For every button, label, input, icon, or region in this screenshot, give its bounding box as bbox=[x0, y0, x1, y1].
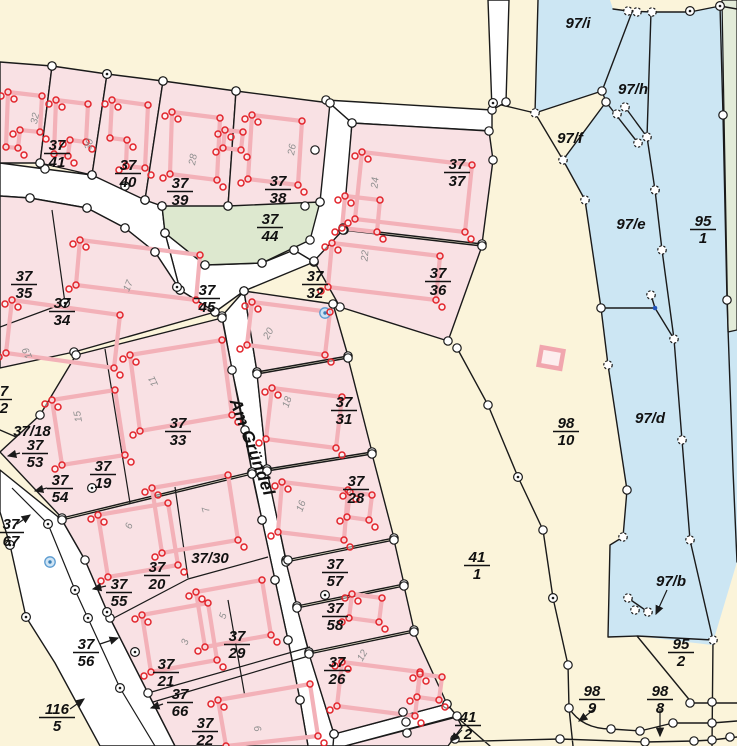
svg-text:33: 33 bbox=[170, 432, 187, 449]
svg-text:37: 37 bbox=[172, 175, 189, 192]
svg-text:37: 37 bbox=[120, 157, 137, 174]
svg-text:2: 2 bbox=[0, 400, 9, 417]
svg-text:37: 37 bbox=[158, 656, 175, 673]
svg-text:37: 37 bbox=[270, 173, 287, 190]
svg-text:98: 98 bbox=[558, 415, 575, 432]
svg-text:8: 8 bbox=[656, 700, 665, 717]
svg-text:20: 20 bbox=[148, 576, 166, 593]
svg-text:26: 26 bbox=[328, 671, 346, 688]
svg-text:1: 1 bbox=[699, 230, 707, 247]
svg-text:95: 95 bbox=[695, 213, 712, 230]
svg-text:56: 56 bbox=[78, 653, 95, 670]
svg-text:7: 7 bbox=[0, 383, 9, 400]
svg-text:41: 41 bbox=[468, 549, 486, 566]
map-canvas[interactable]: 3741374037393738373737443736374537323735… bbox=[0, 0, 737, 746]
svg-text:9: 9 bbox=[588, 700, 597, 717]
svg-text:37: 37 bbox=[348, 473, 365, 490]
svg-text:98: 98 bbox=[584, 683, 601, 700]
svg-text:37: 37 bbox=[199, 282, 216, 299]
svg-text:22: 22 bbox=[196, 732, 214, 746]
svg-text:37: 37 bbox=[229, 628, 246, 645]
svg-text:37: 37 bbox=[336, 394, 353, 411]
svg-text:1: 1 bbox=[473, 566, 481, 583]
parcel-label-97-b: 97/b bbox=[656, 573, 686, 590]
parcel-label-97-i: 97/i bbox=[565, 15, 591, 32]
svg-text:57: 57 bbox=[327, 573, 344, 590]
svg-text:53: 53 bbox=[27, 454, 44, 471]
house-number-22: 22 bbox=[359, 249, 371, 262]
svg-text:97/i: 97/i bbox=[565, 15, 591, 32]
svg-text:37: 37 bbox=[327, 600, 344, 617]
svg-text:37: 37 bbox=[27, 437, 44, 454]
svg-text:19: 19 bbox=[95, 475, 112, 492]
svg-text:37: 37 bbox=[111, 576, 128, 593]
blue-point bbox=[653, 306, 658, 311]
svg-text:37/30: 37/30 bbox=[191, 550, 229, 567]
svg-text:34: 34 bbox=[54, 312, 71, 329]
svg-text:37: 37 bbox=[78, 636, 95, 653]
parcel-label-97-h: 97/h bbox=[618, 81, 648, 98]
svg-text:35: 35 bbox=[16, 285, 33, 302]
svg-text:37: 37 bbox=[449, 156, 466, 173]
svg-text:66: 66 bbox=[172, 703, 189, 720]
svg-text:37: 37 bbox=[16, 268, 33, 285]
svg-text:37: 37 bbox=[3, 516, 20, 533]
svg-text:32: 32 bbox=[307, 285, 324, 302]
svg-text:98: 98 bbox=[652, 683, 669, 700]
house-number-26: 26 bbox=[286, 143, 299, 157]
svg-text:37: 37 bbox=[430, 265, 447, 282]
svg-text:37: 37 bbox=[95, 458, 112, 475]
svg-text:37: 37 bbox=[52, 472, 69, 489]
svg-text:2: 2 bbox=[676, 653, 686, 670]
svg-text:38: 38 bbox=[270, 190, 287, 207]
svg-text:37: 37 bbox=[149, 559, 166, 576]
svg-text:37: 37 bbox=[197, 715, 214, 732]
svg-text:29: 29 bbox=[228, 645, 246, 662]
map-viewport[interactable]: 3741374037393738373737443736374537323735… bbox=[0, 0, 737, 746]
svg-text:37: 37 bbox=[329, 654, 346, 671]
svg-text:55: 55 bbox=[111, 593, 128, 610]
svg-text:37: 37 bbox=[449, 173, 466, 190]
svg-text:97/h: 97/h bbox=[618, 81, 648, 98]
svg-text:97/b: 97/b bbox=[656, 573, 686, 590]
svg-text:45: 45 bbox=[198, 299, 216, 316]
svg-text:28: 28 bbox=[347, 490, 365, 507]
svg-text:41: 41 bbox=[459, 709, 477, 726]
parcel-label-97-f: 97/f bbox=[557, 130, 585, 147]
svg-text:31: 31 bbox=[336, 411, 353, 428]
svg-text:37: 37 bbox=[262, 211, 279, 228]
svg-text:40: 40 bbox=[119, 174, 137, 191]
svg-text:116: 116 bbox=[45, 701, 70, 718]
svg-text:37: 37 bbox=[49, 137, 66, 154]
svg-text:97/d: 97/d bbox=[635, 410, 666, 427]
svg-text:37: 37 bbox=[170, 415, 187, 432]
svg-text:39: 39 bbox=[172, 192, 189, 209]
svg-text:37: 37 bbox=[172, 686, 189, 703]
svg-text:5: 5 bbox=[53, 718, 62, 735]
svg-text:10: 10 bbox=[558, 432, 575, 449]
svg-text:58: 58 bbox=[327, 617, 344, 634]
building-symbol bbox=[539, 347, 564, 369]
svg-text:37: 37 bbox=[307, 268, 324, 285]
parcel-label-97-e: 97/e bbox=[616, 216, 645, 233]
svg-text:54: 54 bbox=[52, 489, 69, 506]
svg-text:2: 2 bbox=[463, 726, 473, 743]
svg-text:67: 67 bbox=[3, 533, 20, 550]
parcel-label-37-30: 37/30 bbox=[191, 550, 229, 567]
svg-text:44: 44 bbox=[261, 228, 279, 245]
house-number-24: 24 bbox=[369, 176, 381, 189]
svg-text:97/e: 97/e bbox=[616, 216, 645, 233]
parcel-label-97-d: 97/d bbox=[635, 410, 666, 427]
svg-text:37: 37 bbox=[327, 556, 344, 573]
svg-text:41: 41 bbox=[48, 154, 66, 171]
svg-text:36: 36 bbox=[430, 282, 447, 299]
svg-text:37: 37 bbox=[54, 295, 71, 312]
house-number-28: 28 bbox=[187, 153, 200, 167]
svg-text:95: 95 bbox=[673, 636, 690, 653]
svg-text:97/f: 97/f bbox=[557, 130, 585, 147]
